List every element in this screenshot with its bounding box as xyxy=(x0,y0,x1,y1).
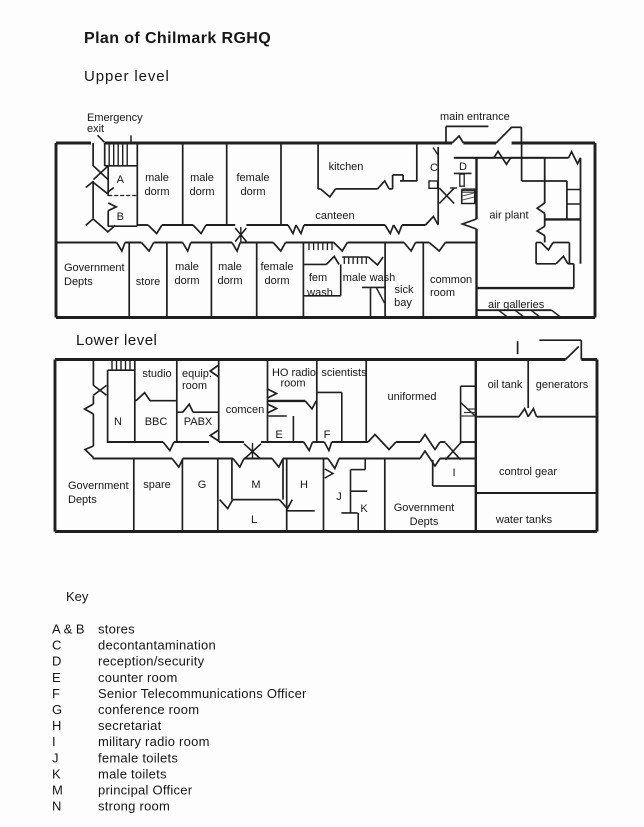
svg-text:A & B: A & B xyxy=(52,622,85,637)
svg-text:exit: exit xyxy=(87,123,104,135)
svg-text:Government: Government xyxy=(64,262,125,274)
svg-text:I: I xyxy=(452,467,455,479)
svg-text:canteen: canteen xyxy=(315,210,354,222)
svg-text:H: H xyxy=(300,479,308,491)
svg-text:sick: sick xyxy=(395,284,414,296)
svg-text:BBC: BBC xyxy=(145,416,168,428)
svg-text:room: room xyxy=(182,380,207,392)
svg-text:dorm: dorm xyxy=(189,186,214,198)
svg-text:studio: studio xyxy=(142,368,171,380)
svg-text:N: N xyxy=(52,799,61,814)
svg-text:spare: spare xyxy=(143,479,171,491)
svg-text:J: J xyxy=(336,491,342,503)
svg-text:room: room xyxy=(280,378,305,390)
svg-text:J: J xyxy=(52,750,59,765)
svg-text:male wash: male wash xyxy=(343,272,396,284)
svg-text:dorm: dorm xyxy=(144,186,169,198)
svg-text:B: B xyxy=(117,211,124,223)
svg-text:Depts: Depts xyxy=(64,276,93,288)
svg-text:dorm: dorm xyxy=(240,186,265,198)
svg-text:male: male xyxy=(218,261,242,273)
svg-text:store: store xyxy=(136,276,160,288)
svg-text:Plan of Chilmark RGHQ: Plan of Chilmark RGHQ xyxy=(84,30,271,47)
svg-text:I: I xyxy=(52,734,56,749)
svg-text:female toilets: female toilets xyxy=(98,750,178,765)
svg-text:decontantamination: decontantamination xyxy=(98,638,216,653)
svg-text:Lower level: Lower level xyxy=(76,332,157,349)
svg-text:stores: stores xyxy=(98,622,135,637)
svg-text:Depts: Depts xyxy=(68,494,97,506)
svg-text:uniformed: uniformed xyxy=(388,391,437,403)
svg-text:bay: bay xyxy=(394,297,412,309)
svg-text:main entrance: main entrance xyxy=(440,111,510,123)
svg-text:male: male xyxy=(145,172,169,184)
svg-text:comcen: comcen xyxy=(226,404,265,416)
svg-text:PABX: PABX xyxy=(184,416,213,428)
svg-text:air galleries: air galleries xyxy=(488,299,545,311)
svg-text:M: M xyxy=(251,479,260,491)
svg-text:conference room: conference room xyxy=(98,702,199,717)
svg-text:female: female xyxy=(260,261,293,273)
svg-text:Senior Telecommunications Offi: Senior Telecommunications Officer xyxy=(98,686,307,701)
svg-text:H: H xyxy=(52,718,61,733)
svg-text:male toilets: male toilets xyxy=(98,766,167,781)
svg-text:control gear: control gear xyxy=(499,466,557,478)
svg-text:K: K xyxy=(52,766,61,781)
svg-text:military radio room: military radio room xyxy=(98,734,210,749)
svg-text:dorm: dorm xyxy=(174,275,199,287)
svg-text:female: female xyxy=(236,172,269,184)
svg-text:N: N xyxy=(114,416,122,428)
svg-text:E: E xyxy=(52,670,61,685)
svg-text:strong room: strong room xyxy=(98,799,170,814)
svg-text:water tanks: water tanks xyxy=(495,514,553,526)
svg-text:air plant: air plant xyxy=(489,210,528,222)
svg-text:Depts: Depts xyxy=(410,516,439,528)
svg-text:A: A xyxy=(117,174,125,186)
svg-text:D: D xyxy=(52,654,61,669)
svg-text:G: G xyxy=(198,479,207,491)
svg-text:Government: Government xyxy=(68,480,129,492)
svg-text:dorm: dorm xyxy=(264,275,289,287)
svg-text:D: D xyxy=(459,161,467,173)
svg-text:wash: wash xyxy=(306,287,333,299)
svg-text:C: C xyxy=(52,638,61,653)
svg-text:F: F xyxy=(52,686,60,701)
svg-text:K: K xyxy=(360,503,368,515)
svg-text:reception/security: reception/security xyxy=(98,654,205,669)
svg-text:male: male xyxy=(175,261,199,273)
svg-text:Government: Government xyxy=(394,502,455,514)
svg-text:C: C xyxy=(430,162,438,174)
svg-text:principal Officer: principal Officer xyxy=(98,783,193,798)
svg-text:dorm: dorm xyxy=(217,275,242,287)
svg-text:L: L xyxy=(251,514,257,526)
svg-text:counter room: counter room xyxy=(98,670,178,685)
svg-text:secretariat: secretariat xyxy=(98,718,162,733)
svg-text:room: room xyxy=(430,287,455,299)
svg-text:M: M xyxy=(52,783,63,798)
svg-text:generators: generators xyxy=(536,379,589,391)
svg-text:scientists: scientists xyxy=(321,367,367,379)
svg-text:fem: fem xyxy=(309,272,327,284)
svg-text:Upper level: Upper level xyxy=(84,68,170,85)
svg-text:E: E xyxy=(275,429,282,441)
svg-text:Key: Key xyxy=(66,589,89,604)
svg-text:kitchen: kitchen xyxy=(329,161,364,173)
svg-text:common: common xyxy=(430,274,472,286)
svg-text:G: G xyxy=(52,702,62,717)
svg-text:oil tank: oil tank xyxy=(488,379,523,391)
svg-text:equip.: equip. xyxy=(182,368,212,380)
svg-text:male: male xyxy=(190,172,214,184)
svg-text:F: F xyxy=(324,429,331,441)
